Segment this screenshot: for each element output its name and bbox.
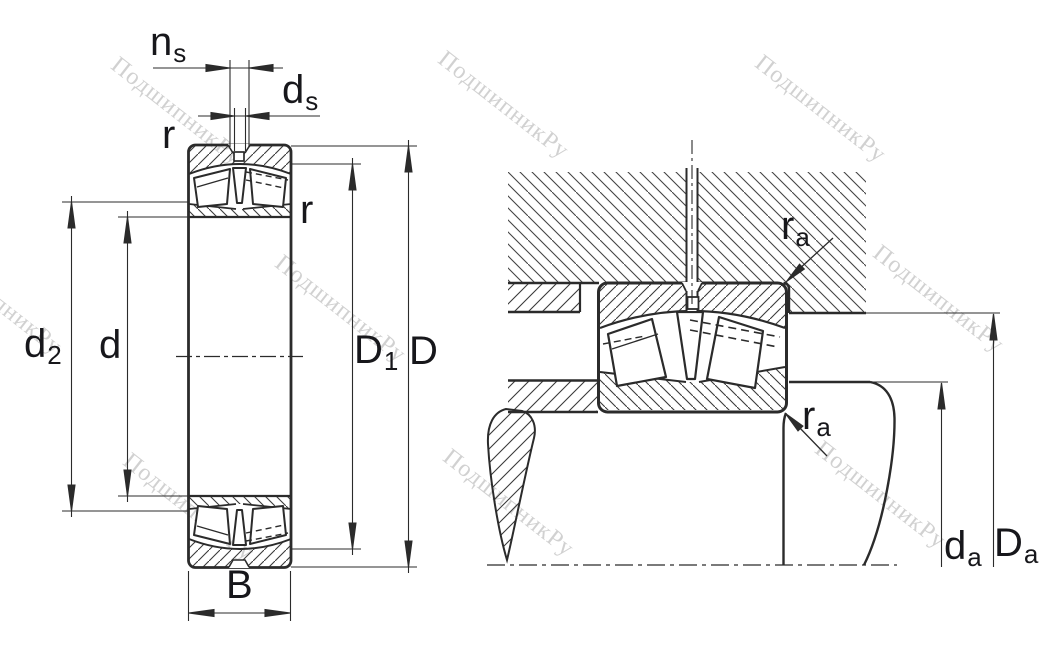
left-figure-bearing-section [176,144,303,568]
dim-label-B: B [226,565,253,605]
dim-label-ra-top: ra [781,206,809,246]
dim-label-ds: ds [282,70,317,110]
dim-label-ns: ns [150,22,185,62]
roller-row-top [194,168,286,207]
outer-abutment-ring [508,284,580,312]
dim-label-D: D [409,331,438,371]
dim-label-r-side: r [300,190,313,230]
dim-label-d: d [99,325,121,365]
roller-row-bottom [194,506,286,545]
dim-label-Da: Da [994,523,1037,563]
dim-label-D1: D1 [354,330,397,370]
bearing-diagram [0,0,1050,650]
bearing-dimension-drawing: { "watermark": { "text": "ПодшипникРу" }… [0,0,1050,650]
retaining-element [488,409,535,560]
shaft-abutment-ring [508,381,597,412]
dim-label-d2: d2 [24,324,61,364]
dim-label-da: da [944,526,981,566]
right-figure-mounting [487,140,1000,567]
dim-label-r-top: r [162,115,175,155]
rollers-right-figure [608,312,763,388]
dim-label-ra-bottom: ra [802,396,830,436]
